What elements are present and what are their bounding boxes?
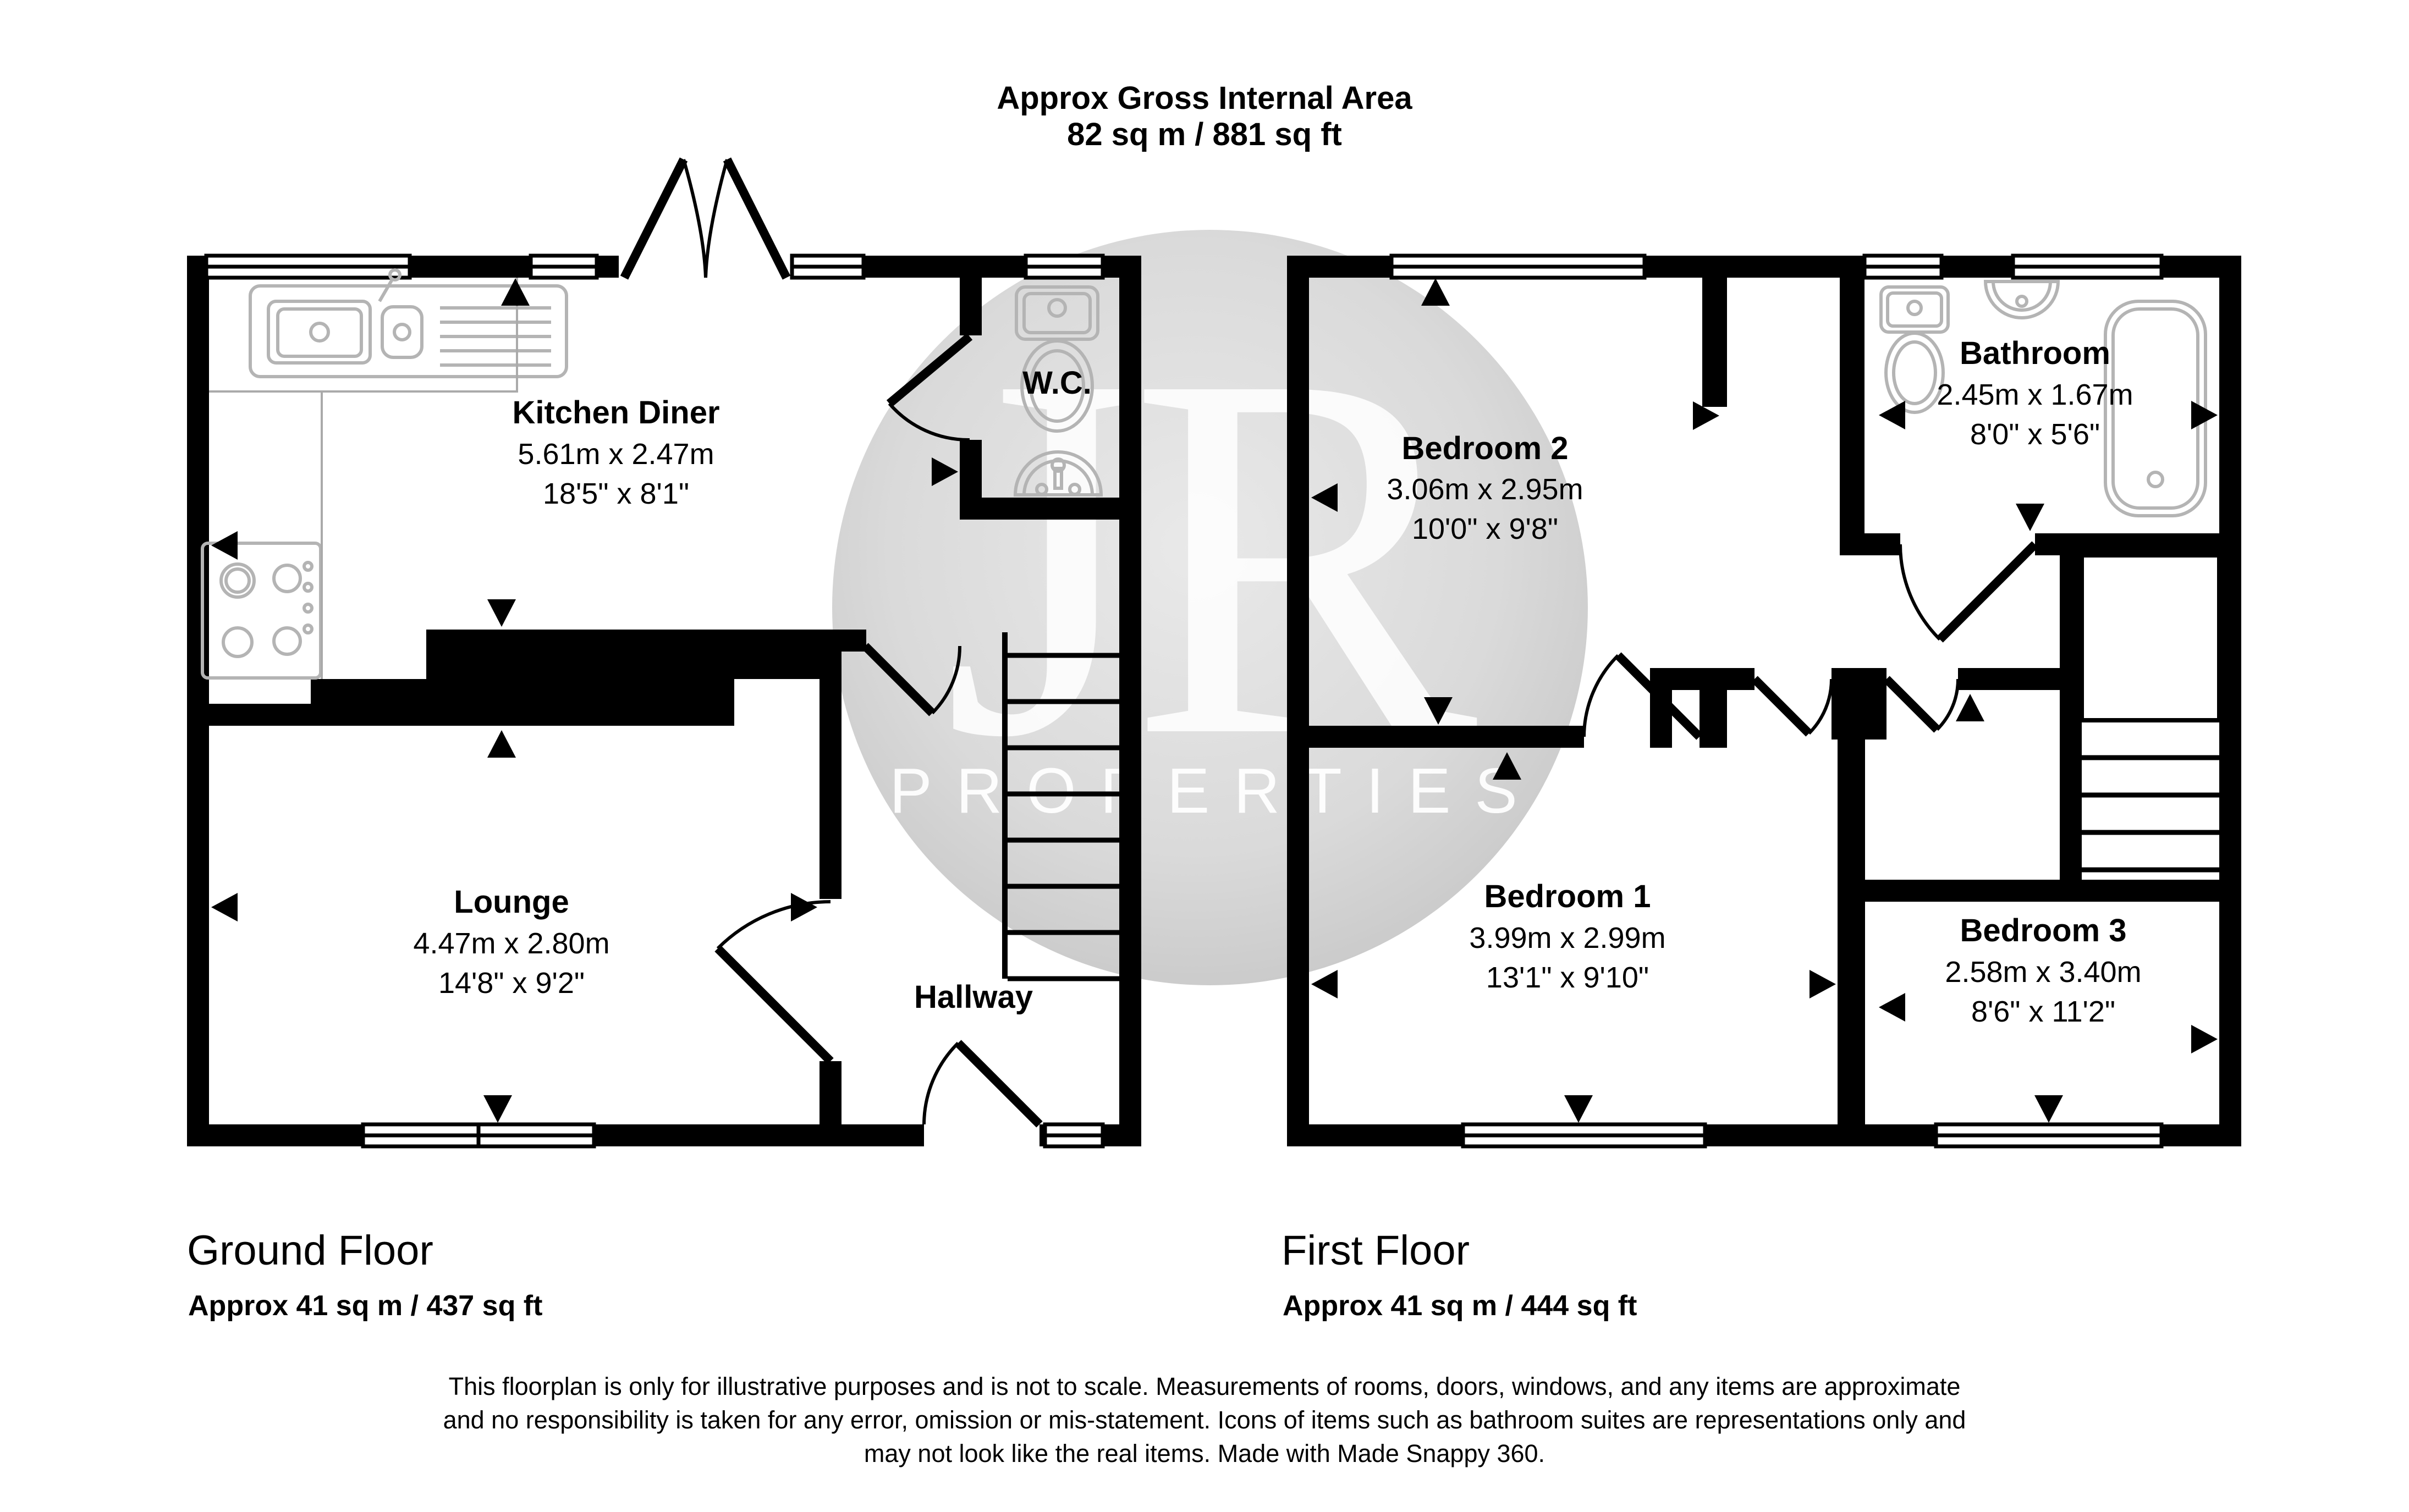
kitchen-window-3 xyxy=(792,256,864,278)
marker-up-icon xyxy=(501,278,530,306)
watermark: JR PROPERTIES xyxy=(832,230,1588,985)
bedroom2-metric: 3.06m x 2.95m xyxy=(1387,473,1583,506)
bathroom-window-2 xyxy=(2013,256,2161,278)
gross-internal-area-title: Approx Gross Internal Area xyxy=(997,80,1412,116)
wc-label: W.C. xyxy=(1022,365,1092,401)
disclaimer-line-3: may not look like the real items. Made w… xyxy=(864,1439,1545,1467)
hallway-window xyxy=(1045,1124,1103,1146)
hallway-label: Hallway xyxy=(914,979,1033,1015)
bedroom2-label: Bedroom 2 xyxy=(1402,431,1569,466)
kitchen-diner-label: Kitchen Diner xyxy=(512,395,719,431)
bathroom-imperial: 8'0" x 5'6" xyxy=(1970,418,2100,451)
marker-left-icon xyxy=(1879,993,1905,1022)
marker-down-icon xyxy=(2034,1095,2063,1123)
floorplan-page: Approx Gross Internal Area 82 sq m / 881… xyxy=(0,0,2409,1512)
gross-internal-area-value: 82 sq m / 881 sq ft xyxy=(1067,117,1342,152)
hob-icon xyxy=(202,543,321,678)
marker-left-icon xyxy=(1311,970,1338,998)
front-door xyxy=(924,1043,1039,1124)
bedroom1-metric: 3.99m x 2.99m xyxy=(1469,921,1665,954)
marker-down-icon xyxy=(483,1095,512,1123)
marker-down-icon xyxy=(1564,1095,1593,1123)
disclaimer-line-2: and no responsibility is taken for any e… xyxy=(443,1406,1966,1434)
marker-down-icon xyxy=(2016,504,2044,531)
bedroom3-imperial: 8'6" x 11'2" xyxy=(1971,995,2115,1028)
marker-right-icon xyxy=(2191,1025,2218,1053)
bedroom3-door xyxy=(1887,679,1958,730)
bedroom1-door xyxy=(1755,679,1832,733)
first-floor-caption: First Floor xyxy=(1281,1227,1470,1274)
ground-floor-area: Approx 41 sq m / 437 sq ft xyxy=(188,1290,542,1322)
first-floor-area: Approx 41 sq m / 444 sq ft xyxy=(1283,1290,1637,1322)
bedroom2-window xyxy=(1391,256,1645,278)
lounge-metric: 4.47m x 2.80m xyxy=(413,927,609,960)
first-floor-stairs xyxy=(2082,555,2219,870)
marker-right-icon xyxy=(1810,970,1836,998)
ground-floor-caption: Ground Floor xyxy=(187,1227,433,1274)
watermark-word: PROPERTIES xyxy=(889,755,1542,826)
bedroom3-label: Bedroom 3 xyxy=(1960,913,2127,948)
kitchen-window-2 xyxy=(531,256,597,278)
kitchen-window xyxy=(206,256,410,278)
marker-down-icon xyxy=(487,599,516,627)
marker-up-icon xyxy=(487,730,516,758)
bedroom3-metric: 2.58m x 3.40m xyxy=(1945,956,2141,989)
floor-captions: Ground Floor Approx 41 sq m / 437 sq ft … xyxy=(187,1227,1637,1322)
marker-left-icon xyxy=(1879,401,1905,429)
marker-left-icon xyxy=(211,893,238,921)
bedroom2-door xyxy=(1584,655,1700,737)
bathroom-label: Bathroom xyxy=(1960,335,2110,371)
marker-left-icon xyxy=(211,531,238,560)
bedroom1-window xyxy=(1463,1124,1705,1146)
bedroom1-imperial: 13'1" x 9'10" xyxy=(1486,961,1649,994)
disclaimer-line-1: This floorplan is only for illustrative … xyxy=(449,1372,1961,1400)
header: Approx Gross Internal Area 82 sq m / 881… xyxy=(997,80,1412,152)
bathroom-metric: 2.45m x 1.67m xyxy=(1937,378,2133,411)
bathroom-door xyxy=(1900,544,2035,639)
bedroom2-imperial: 10'0" x 9'8" xyxy=(1412,512,1558,545)
bedroom3-window xyxy=(1936,1124,2161,1146)
marker-right-icon xyxy=(791,893,817,921)
bathroom-sink-icon xyxy=(1986,282,2058,318)
wc-window xyxy=(1026,256,1103,278)
chimney-breast xyxy=(426,630,842,679)
front-door-opening xyxy=(924,1119,1039,1152)
bathroom-window xyxy=(1865,256,1942,278)
lounge-window xyxy=(363,1124,594,1146)
bedroom1-label: Bedroom 1 xyxy=(1484,879,1651,914)
lounge-door xyxy=(718,902,831,1061)
kitchen-diner-metric: 5.61m x 2.47m xyxy=(518,438,714,471)
floorplan-svg: Approx Gross Internal Area 82 sq m / 881… xyxy=(0,0,2409,1512)
lounge-label: Lounge xyxy=(454,884,569,920)
lounge-imperial: 14'8" x 9'2" xyxy=(438,967,585,1000)
kitchen-diner-imperial: 18'5" x 8'1" xyxy=(543,477,689,510)
disclaimer: This floorplan is only for illustrative … xyxy=(443,1372,1966,1467)
marker-up-icon xyxy=(1956,694,1984,721)
